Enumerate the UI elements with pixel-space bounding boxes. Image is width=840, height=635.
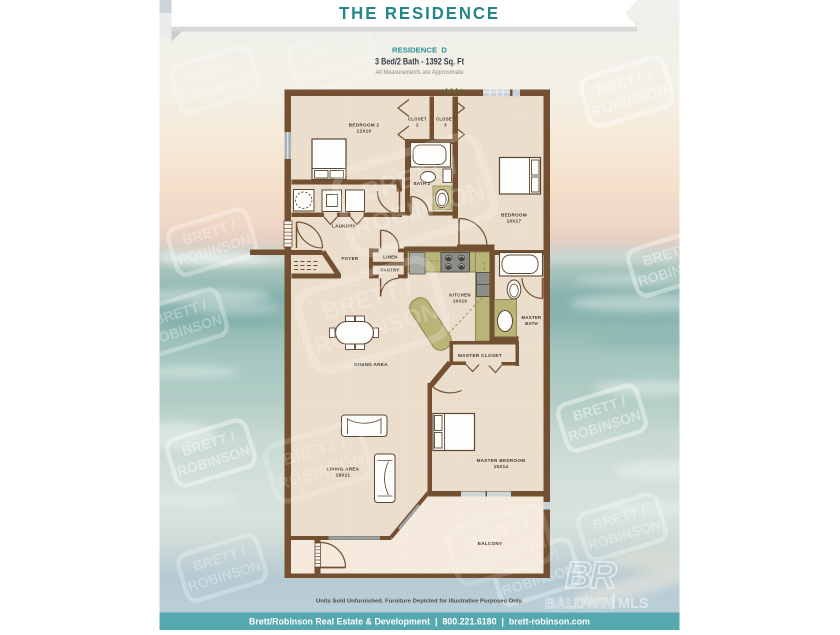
svg-text:2: 2 xyxy=(416,123,419,128)
svg-text:MASTER CLOSET: MASTER CLOSET xyxy=(458,353,502,358)
svg-text:THE RESIDENCE: THE RESIDENCE xyxy=(339,3,500,23)
svg-text:BALDWIN: BALDWIN xyxy=(545,596,613,612)
svg-text:3: 3 xyxy=(444,123,447,128)
svg-text:10X17: 10X17 xyxy=(507,219,522,224)
svg-text:10X10: 10X10 xyxy=(453,299,467,304)
svg-text:CLOSET: CLOSET xyxy=(408,117,427,122)
svg-text:BEDROOM: BEDROOM xyxy=(501,213,527,218)
svg-text:MASTER BEDROOM: MASTER BEDROOM xyxy=(477,458,526,463)
svg-text:LINEN: LINEN xyxy=(383,255,397,260)
svg-text:3 Bed/2 Bath - 1392 Sq. Ft: 3 Bed/2 Bath - 1392 Sq. Ft xyxy=(375,56,464,67)
svg-text:BR: BR xyxy=(565,555,617,597)
svg-text:12X10: 12X10 xyxy=(357,129,372,134)
svg-text:FOYER: FOYER xyxy=(341,256,358,261)
svg-text:CLOSET: CLOSET xyxy=(436,117,455,122)
svg-text:MASTER: MASTER xyxy=(522,315,543,320)
svg-text:Brett/Robinson Real Estate & D: Brett/Robinson Real Estate & Development… xyxy=(249,617,590,627)
svg-text:BATH: BATH xyxy=(525,321,538,326)
svg-text:15X14: 15X14 xyxy=(494,464,509,469)
svg-text:RESIDENCE D: RESIDENCE D xyxy=(392,46,448,55)
svg-text:Units Sold Unfurnished. Furnit: Units Sold Unfurnished. Furniture Depict… xyxy=(316,599,523,605)
svg-text:KITCHEN: KITCHEN xyxy=(449,293,471,298)
svg-text:All Measurements are Approxima: All Measurements are Approximate xyxy=(376,70,465,76)
svg-text:BEDROOM 2: BEDROOM 2 xyxy=(349,123,380,128)
svg-text:MLS: MLS xyxy=(618,596,649,612)
